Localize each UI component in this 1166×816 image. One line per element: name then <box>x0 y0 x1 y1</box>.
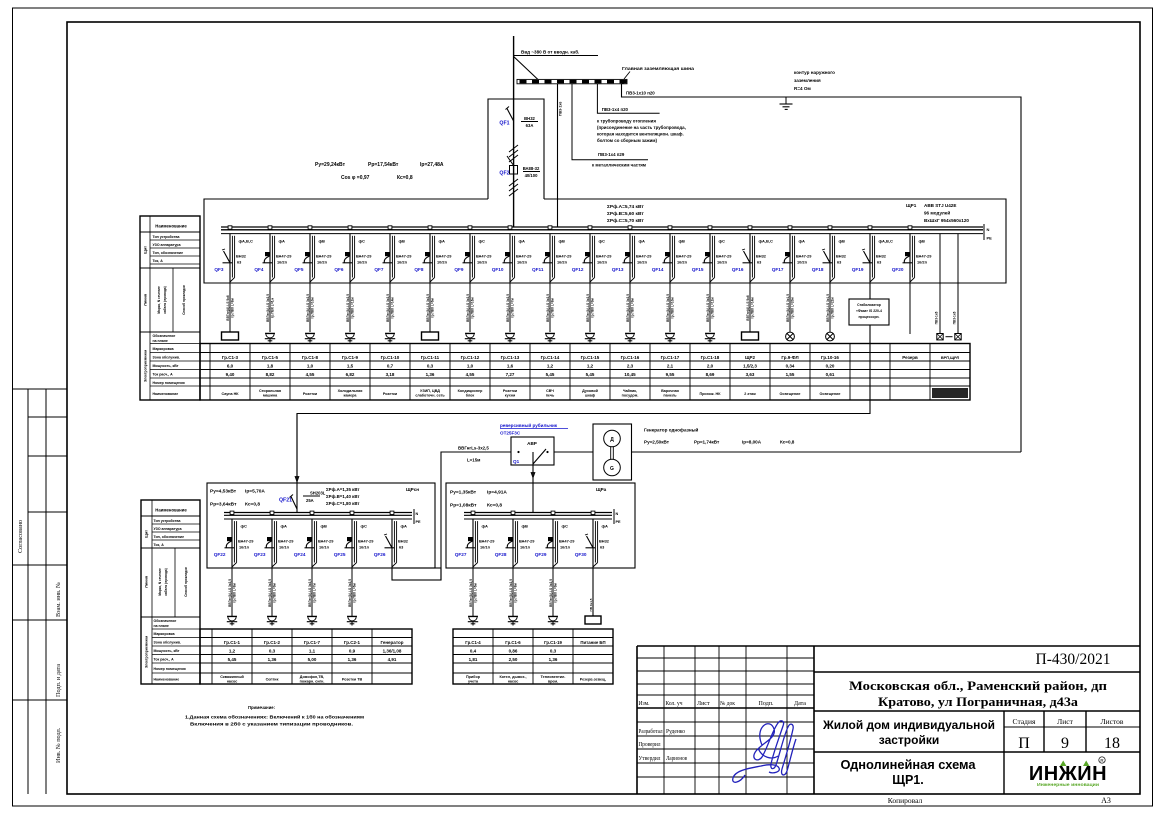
svg-text:16/2п: 16/2п <box>357 260 368 265</box>
svg-text:QF23: QF23 <box>254 552 266 557</box>
svg-text:ВА47-29: ВА47-29 <box>596 254 612 259</box>
svg-text:Марка, N сечение: Марка, N сечение <box>157 286 161 314</box>
svg-text:Скважинный: Скважинный <box>220 675 244 679</box>
svg-text:Однолинейная схема: Однолинейная схема <box>841 758 977 772</box>
svg-text:9,40: 9,40 <box>226 372 235 377</box>
svg-text:Гр.С1-17: Гр.С1-17 <box>661 355 680 360</box>
svg-text:1.Данная схема обозначениях: В: 1.Данная схема обозначениях: Включений к… <box>185 714 365 720</box>
svg-text:№ док: № док <box>720 701 735 707</box>
svg-text:пожарн. сигн.: пожарн. сигн. <box>300 680 325 684</box>
svg-text:1,36: 1,36 <box>549 657 558 662</box>
svg-text:ВВГнгLs-3х2,5: ВВГнгLs-3х2,5 <box>458 446 489 451</box>
svg-text:Сауна НК: Сауна НК <box>221 392 239 396</box>
svg-text:Номер помещения: Номер помещения <box>153 381 185 385</box>
svg-text:Копировал: Копировал <box>888 796 923 805</box>
svg-text:Септик: Септик <box>266 678 279 682</box>
svg-text:16/1п: 16/1п <box>560 545 571 550</box>
svg-text:Гр.С1-8: Гр.С1-8 <box>302 355 319 360</box>
svg-text:10,45: 10,45 <box>624 372 636 377</box>
svg-text:Наименование: Наименование <box>155 224 187 229</box>
svg-text:тр.ПВХ L=8м: тр.ПВХ L=8м <box>513 582 517 602</box>
svg-text:1,5: 1,5 <box>347 364 354 369</box>
svg-text:0,61: 0,61 <box>826 372 835 377</box>
svg-text:ЩРа: ЩРа <box>596 487 607 492</box>
svg-text:тр.ПВХ L=7м: тр.ПВХ L=7м <box>510 297 514 317</box>
svg-text:Рр=17,54кВт: Рр=17,54кВт <box>368 162 399 168</box>
svg-text:фА: фА <box>401 524 408 529</box>
svg-text:Генератор: Генератор <box>381 640 404 645</box>
svg-text:16/2п: 16/2п <box>317 260 328 265</box>
svg-text:5,00: 5,00 <box>308 657 317 662</box>
svg-text:ВА47-29: ВА47-29 <box>316 254 332 259</box>
svg-text:Мощность, кВт: Мощность, кВт <box>153 364 179 368</box>
svg-text:Гр.С1-15: Гр.С1-15 <box>581 355 600 360</box>
svg-text:16/2п: 16/2п <box>597 260 608 265</box>
svg-text:16/2п: 16/2п <box>717 260 728 265</box>
svg-text:фВ: фВ <box>679 239 686 244</box>
svg-text:Домофон,ТВ,: Домофон,ТВ, <box>300 675 324 679</box>
svg-text:ЩР1.: ЩР1. <box>892 773 924 787</box>
svg-text:ΣРф.С=5,70 кВт: ΣРф.С=5,70 кВт <box>607 217 644 224</box>
svg-text:0,34: 0,34 <box>786 364 795 369</box>
svg-text:16/2п: 16/2п <box>557 260 568 265</box>
svg-text:Cos φ =0,97: Cos φ =0,97 <box>341 175 370 181</box>
svg-text:насос: насос <box>227 680 238 684</box>
svg-text:Гр.С1-5: Гр.С1-5 <box>262 355 279 360</box>
svg-text:QF6: QF6 <box>334 267 344 272</box>
svg-text:ВВГнг(А)-LS 3х2,5: ВВГнг(А)-LS 3х2,5 <box>348 579 352 607</box>
svg-text:ΣРф.В=5,60 кВт: ΣРф.В=5,60 кВт <box>607 210 644 217</box>
svg-text:5,45: 5,45 <box>228 657 237 662</box>
svg-text:ΣРф.В=1,40 кВт: ΣРф.В=1,40 кВт <box>326 494 360 499</box>
svg-text:Iр=4,91А: Iр=4,91А <box>487 490 507 496</box>
svg-text:Обозначение: Обозначение <box>153 334 176 338</box>
svg-text:ЩР1: ЩР1 <box>906 203 917 208</box>
svg-text:0,86: 0,86 <box>509 649 518 654</box>
svg-text:застройки: застройки <box>879 733 939 747</box>
svg-text:Стабилизатор: Стабилизатор <box>857 303 881 307</box>
svg-text:Чайник,: Чайник, <box>623 389 637 393</box>
svg-text:Рр=3,64кВт: Рр=3,64кВт <box>210 502 237 508</box>
svg-text:0,9: 0,9 <box>349 649 356 654</box>
svg-text:Холодильная: Холодильная <box>338 389 363 393</box>
svg-text:Ру=29,24кВт: Ру=29,24кВт <box>315 162 346 168</box>
svg-text:ВА47-29: ВА47-29 <box>278 539 294 544</box>
svg-text:Тип, обозначение: Тип, обозначение <box>153 251 184 255</box>
svg-text:3,63: 3,63 <box>746 372 755 377</box>
svg-text:тр.ПВХ L=9м: тр.ПВХ L=9м <box>590 297 594 317</box>
svg-text:Кс=0,8: Кс=0,8 <box>397 175 413 181</box>
svg-text:ВН32: ВН32 <box>836 254 847 259</box>
svg-text:ВВГнг(А)-LS 3х2,5: ВВГнг(А)-LS 3х2,5 <box>549 579 553 607</box>
svg-text:УЗО аппаратура: УЗО аппаратура <box>154 527 182 531</box>
svg-text:Кс=0,8: Кс=0,8 <box>780 440 795 445</box>
svg-text:фА,В,С: фА,В,С <box>879 239 894 244</box>
svg-text:Кондиционер: Кондиционер <box>458 389 483 393</box>
svg-text:16/2п: 16/2п <box>517 260 528 265</box>
svg-text:16/1п: 16/1п <box>359 545 370 550</box>
svg-text:9,55: 9,55 <box>666 372 675 377</box>
svg-text:1,8: 1,8 <box>267 364 274 369</box>
svg-text:Гр.С1-7: Гр.С1-7 <box>304 640 321 645</box>
svg-text:16/1п: 16/1п <box>480 545 491 550</box>
svg-text:тр.ПВХ L=6м: тр.ПВХ L=6м <box>352 582 356 602</box>
svg-text:16/2п: 16/2п <box>397 260 408 265</box>
svg-text:Тип, обозначение: Тип, обозначение <box>154 535 185 539</box>
svg-text:N: N <box>416 512 419 516</box>
svg-text:ВхШхГ 954х560х120: ВхШхГ 954х560х120 <box>924 218 969 223</box>
svg-text:Наименование: Наименование <box>155 508 187 513</box>
svg-text:Электроприемники: Электроприемники <box>145 636 149 668</box>
svg-text:ΣРф.А=5,74 кВт: ΣРф.А=5,74 кВт <box>607 203 644 210</box>
svg-text:тр.ПВХ L=8м: тр.ПВХ L=8м <box>230 297 234 317</box>
svg-text:QF26: QF26 <box>374 552 386 557</box>
svg-text:2,3: 2,3 <box>627 364 634 369</box>
svg-text:Руденко: Руденко <box>666 728 685 735</box>
svg-text:Жилой дом индивидуальной: Жилой дом индивидуальной <box>822 718 995 732</box>
svg-text:QF10: QF10 <box>492 267 504 272</box>
svg-text:1,0: 1,0 <box>307 364 314 369</box>
svg-text:PE: PE <box>987 236 993 241</box>
svg-text:ВВГнг(А)-LS 5х6: ВВГнг(А)-LS 5х6 <box>226 295 230 321</box>
svg-text:фВ: фВ <box>522 524 529 529</box>
svg-text:ВВГнг(А)-LS 3х1,5: ВВГнг(А)-LS 3х1,5 <box>786 294 790 322</box>
svg-text:ВА47-29: ВА47-29 <box>559 539 575 544</box>
svg-text:1,81: 1,81 <box>469 657 478 662</box>
svg-text:Щит: Щит <box>145 530 149 538</box>
svg-text:Розетки: Розетки <box>383 392 398 396</box>
svg-text:Гр.С1-2: Гр.С1-2 <box>264 640 281 645</box>
svg-text:тр.ПВХ L=16м: тр.ПВХ L=16м <box>470 297 474 319</box>
svg-text:2,1: 2,1 <box>667 364 674 369</box>
svg-text:ВА47-29: ВА47-29 <box>356 254 372 259</box>
svg-text:ВН32: ВН32 <box>599 539 610 544</box>
svg-text:фА: фА <box>602 524 609 529</box>
svg-text:QF2: QF2 <box>499 171 509 177</box>
svg-text:тр.ПВХ L=12м: тр.ПВХ L=12м <box>710 297 714 319</box>
svg-text:Марка, N сечение: Марка, N сечение <box>158 568 162 596</box>
svg-text:тр.ПВХ L=14м: тр.ПВХ L=14м <box>390 297 394 319</box>
svg-text:на плане: на плане <box>154 624 169 628</box>
svg-text:Тип устройства: Тип устройства <box>153 235 180 239</box>
svg-text:10/2п: 10/2п <box>437 260 448 265</box>
svg-text:ПВ3-1х6: ПВ3-1х6 <box>559 102 563 116</box>
svg-text:Гр.С1-10: Гр.С1-10 <box>381 355 400 360</box>
svg-text:ВВГнг(А)-LS 3х1,5: ВВГнг(А)-LS 3х1,5 <box>826 294 830 322</box>
svg-text:болтом со сборным зажим): болтом со сборным зажим) <box>597 138 658 143</box>
svg-text:тр.ПВХ L=6м: тр.ПВХ L=6м <box>473 582 477 602</box>
svg-text:PE: PE <box>616 520 622 524</box>
svg-text:ВВГнг(А)-LS 3х2,5: ВВГнг(А)-LS 3х2,5 <box>268 579 272 607</box>
svg-text:ВА47-29: ВА47-29 <box>476 254 492 259</box>
svg-text:посудом.: посудом. <box>622 394 639 398</box>
svg-text:Включения в 2б0 с указанием ти: Включения в 2б0 с указанием типизации пр… <box>190 721 353 727</box>
svg-text:ВВГнг(А)-LS 3х2,5: ВВГнг(А)-LS 3х2,5 <box>386 294 390 322</box>
svg-text:Ток, А: Ток, А <box>154 543 165 547</box>
svg-text:А3: А3 <box>1101 796 1111 805</box>
svg-text:1,36: 1,36 <box>426 372 435 377</box>
svg-text:ВА47-29: ВА47-29 <box>436 254 452 259</box>
svg-text:Электроприемники: Электроприемники <box>144 350 148 382</box>
svg-text:фВ: фВ <box>839 239 846 244</box>
svg-text:4,55: 4,55 <box>306 372 315 377</box>
svg-text:Генератор однофазный: Генератор однофазный <box>644 427 699 433</box>
svg-text:камера: камера <box>344 394 358 398</box>
svg-text:QF12: QF12 <box>572 267 584 272</box>
svg-text:П: П <box>1018 735 1030 752</box>
svg-text:N: N <box>616 512 619 516</box>
svg-text:ВА88-32: ВА88-32 <box>523 166 540 171</box>
svg-text:тр.ПВХ L=7м: тр.ПВХ L=7м <box>312 582 316 602</box>
svg-text:тр.ПВХ L=8м: тр.ПВХ L=8м <box>550 297 554 317</box>
svg-text:1,36/1,08: 1,36/1,08 <box>383 649 402 654</box>
svg-text:R=4 Ом: R=4 Ом <box>794 86 811 91</box>
svg-text:0,4: 0,4 <box>470 649 477 654</box>
svg-text:фВ: фВ <box>319 239 326 244</box>
svg-text:QF24: QF24 <box>294 552 306 557</box>
svg-text:4,55: 4,55 <box>466 372 475 377</box>
svg-text:Стадия: Стадия <box>1013 717 1036 726</box>
svg-text:Мощность, кВт: Мощность, кВт <box>154 649 180 653</box>
svg-text:тр.ПВХ L=9м: тр.ПВХ L=9м <box>272 582 276 602</box>
svg-text:Ру=2,50кВт: Ру=2,50кВт <box>644 440 670 445</box>
svg-text:Тип устройства: Тип устройства <box>154 519 181 523</box>
svg-text:Ток, А: Ток, А <box>153 259 164 263</box>
svg-text:Рр=1,08кВт: Рр=1,08кВт <box>450 503 477 509</box>
svg-text:QF19: QF19 <box>852 267 864 272</box>
svg-text:ВВГнг(А)-LS 3х2,5: ВВГнг(А)-LS 3х2,5 <box>469 579 473 607</box>
svg-text:QF14: QF14 <box>652 267 664 272</box>
svg-text:16/2п: 16/2п <box>477 260 488 265</box>
svg-text:16/2п: 16/2п <box>677 260 688 265</box>
svg-text:Листов: Листов <box>1101 717 1124 726</box>
svg-text:25А: 25А <box>306 498 314 503</box>
svg-text:контур наружного: контур наружного <box>794 70 835 75</box>
svg-text:QF8: QF8 <box>414 267 424 272</box>
svg-text:Прибор: Прибор <box>466 675 481 679</box>
svg-text:9: 9 <box>1061 735 1069 752</box>
svg-text:Розетки: Розетки <box>503 389 518 393</box>
svg-text:тр.ПВХ L=6,н: тр.ПВХ L=6,н <box>270 298 274 318</box>
svg-text:ВА47-29: ВА47-29 <box>636 254 652 259</box>
svg-text:16/1п: 16/1п <box>319 545 330 550</box>
svg-text:ПВ3-1х10 п20: ПВ3-1х10 п20 <box>626 91 655 96</box>
svg-text:тр.ПВХ L=10м: тр.ПВХ L=10м <box>670 297 674 319</box>
svg-text:ВН32: ВН32 <box>236 254 247 259</box>
svg-text:ВА47-29: ВА47-29 <box>676 254 692 259</box>
svg-text:тр.ПВХ L=6м: тр.ПВХ L=6м <box>430 297 434 317</box>
svg-text:Московская обл., Раменский рай: Московская обл., Раменский район, дп <box>849 678 1108 693</box>
svg-text:тр.ПВХ L=20м: тр.ПВХ L=20м <box>790 297 794 319</box>
svg-text:16/1п: 16/1п <box>520 545 531 550</box>
svg-text:0,7: 0,7 <box>387 364 394 369</box>
svg-text:ВА47-29: ВА47-29 <box>238 539 254 544</box>
svg-text:Зона обслужив.: Зона обслужив. <box>154 641 182 645</box>
svg-text:0,3: 0,3 <box>427 364 434 369</box>
svg-text:ВА47-29: ВА47-29 <box>516 254 532 259</box>
svg-text:1,2: 1,2 <box>229 649 236 654</box>
svg-text:ВА47-29: ВА47-29 <box>479 539 495 544</box>
svg-text:ВВГнг(А)-LS 3х2,5: ВВГнг(А)-LS 3х2,5 <box>228 579 232 607</box>
svg-text:Проверил: Проверил <box>639 741 661 748</box>
svg-text:Инв. № подл.: Инв. № подл. <box>55 727 62 763</box>
svg-text:7,27: 7,27 <box>506 372 515 377</box>
svg-text:УЗИП, ЦВД: УЗИП, ЦВД <box>420 389 440 393</box>
svg-text:Примечание:: Примечание: <box>248 705 275 710</box>
svg-text:Гр.9-ФЛ: Гр.9-ФЛ <box>781 355 798 360</box>
svg-text:заземления: заземления <box>794 78 821 83</box>
svg-text:ABB STJ U42E: ABB STJ U42E <box>924 203 956 208</box>
svg-text:ВН32: ВН32 <box>398 539 409 544</box>
svg-text:16/2п: 16/2п <box>277 260 288 265</box>
svg-text:Гр.С1-4: Гр.С1-4 <box>465 640 481 645</box>
svg-text:16/1п: 16/1п <box>239 545 250 550</box>
svg-text:5,45: 5,45 <box>546 372 555 377</box>
svg-text:6,82: 6,82 <box>346 372 355 377</box>
svg-text:Разработал: Разработал <box>639 728 663 735</box>
svg-text:реверсивный рубильник: реверсивный рубильник <box>500 422 558 428</box>
svg-text:Гр.С1-11: Гр.С1-11 <box>421 355 440 360</box>
svg-text:ПВ3-1х6: ПВ3-1х6 <box>953 311 957 324</box>
svg-text:QF15: QF15 <box>692 267 704 272</box>
svg-text:ВВГнг(А)-LS 5х6: ВВГнг(А)-LS 5х6 <box>746 295 750 321</box>
svg-text:Гр.С1-1: Гр.С1-1 <box>224 640 241 645</box>
svg-text:SH203L: SH203L <box>310 491 326 496</box>
svg-text:АВР: АВР <box>527 441 537 446</box>
svg-text:1,0: 1,0 <box>467 364 474 369</box>
svg-text:ВРП,ЩРЛ: ВРП,ЩРЛ <box>941 355 960 360</box>
svg-text:учета: учета <box>468 680 479 684</box>
svg-text:QF4: QF4 <box>254 267 264 272</box>
svg-text:Ру=4,53кВт: Ру=4,53кВт <box>210 489 237 495</box>
svg-text:ЩРсн: ЩРсн <box>406 487 419 492</box>
svg-text:фС: фС <box>359 239 366 244</box>
svg-text:Линия: Линия <box>144 294 148 306</box>
svg-text:П-430/2021: П-430/2021 <box>1036 651 1111 668</box>
svg-text:QF20: QF20 <box>892 267 904 272</box>
svg-text:QF18: QF18 <box>812 267 824 272</box>
svg-text:Кратово, ул Пограничная, д43а: Кратово, ул Пограничная, д43а <box>878 694 1079 709</box>
svg-text:QF5: QF5 <box>294 267 304 272</box>
svg-text:фС: фС <box>361 524 368 529</box>
svg-text:ВВГнг(А)-LS 3х2,5: ВВГнг(А)-LS 3х2,5 <box>586 294 590 322</box>
svg-text:(присоединение на часть трубоп: (присоединение на часть трубопровода, <box>597 125 686 130</box>
svg-text:печь: печь <box>546 394 555 398</box>
svg-text:QF22: QF22 <box>214 552 226 557</box>
svg-text:QF30: QF30 <box>575 552 587 557</box>
svg-text:QF13: QF13 <box>612 267 624 272</box>
svg-text:N: N <box>987 227 990 232</box>
svg-text:ВВГнг(А)-LS 3х2,5: ВВГнг(А)-LS 3х2,5 <box>706 294 710 322</box>
svg-text:Гр.С1-3: Гр.С1-3 <box>222 355 239 360</box>
svg-text:ВВГнг(А)-LS 3х2,5: ВВГнг(А)-LS 3х2,5 <box>426 294 430 322</box>
svg-text:4,91: 4,91 <box>388 657 397 662</box>
svg-text:блок: блок <box>466 394 475 398</box>
svg-text:Прихож. НК: Прихож. НК <box>700 392 722 396</box>
svg-text:Гр.С1-9: Гр.С1-9 <box>342 355 359 360</box>
svg-text:Котел, дымох.,: Котел, дымох., <box>499 675 526 679</box>
svg-text:QF3: QF3 <box>214 267 224 272</box>
svg-text:машина: машина <box>263 394 278 398</box>
svg-text:фС: фС <box>562 524 569 529</box>
svg-text:QF17: QF17 <box>772 267 784 272</box>
svg-text:2,0: 2,0 <box>707 364 714 369</box>
svg-text:Изм.: Изм. <box>639 701 650 707</box>
svg-text:фА,В,С: фА,В,С <box>239 239 254 244</box>
svg-text:Ввд ~380 В от вводн. каб.: Ввд ~380 В от вводн. каб. <box>521 49 579 55</box>
svg-text:фА: фА <box>281 524 288 529</box>
svg-text:OT25F3C: OT25F3C <box>500 431 521 436</box>
svg-text:Розетки ТВ: Розетки ТВ <box>342 678 363 682</box>
svg-text:1,5/2,3: 1,5/2,3 <box>743 364 757 369</box>
svg-text:Способ прокладки: Способ прокладки <box>184 567 188 597</box>
svg-text:Стиральная: Стиральная <box>259 389 281 393</box>
svg-text:Резерв.освещ.: Резерв.освещ. <box>580 678 606 682</box>
svg-text:на плане: на плане <box>153 339 168 343</box>
svg-text:QF1: QF1 <box>499 121 509 127</box>
svg-text:Ток расч., А: Ток расч., А <box>153 373 174 377</box>
svg-text:ΣРф.С=1,80 кВт: ΣРф.С=1,80 кВт <box>326 501 360 506</box>
svg-text:Обозначение: Обозначение <box>154 619 177 623</box>
svg-text:ПВ 3х1,5: ПВ 3х1,5 <box>589 598 593 611</box>
svg-text:ВВГнг(А)-LS 3х2,5: ВВГнг(А)-LS 3х2,5 <box>626 294 630 322</box>
svg-text:Маркировка: Маркировка <box>153 347 174 351</box>
svg-text:ВВГнг(А)-LS 3х2,5: ВВГнг(А)-LS 3х2,5 <box>466 294 470 322</box>
svg-text:ВВГнг(А)-LS 3х2,5: ВВГнг(А)-LS 3х2,5 <box>506 294 510 322</box>
svg-text:к трубопроводу отопления: к трубопроводу отопления <box>597 119 656 124</box>
svg-text:СВЧ: СВЧ <box>546 389 554 393</box>
svg-text:Розетки: Розетки <box>303 392 318 396</box>
svg-text:ВА47-29: ВА47-29 <box>318 539 334 544</box>
svg-text:Iр=8,00А: Iр=8,00А <box>742 440 762 445</box>
svg-text:3,18: 3,18 <box>386 372 395 377</box>
svg-text:Согласовано: Согласовано <box>17 520 24 553</box>
svg-text:QF25: QF25 <box>334 552 346 557</box>
svg-text:Способ прокладки: Способ прокладки <box>182 285 186 315</box>
svg-text:1,6: 1,6 <box>507 364 514 369</box>
svg-text:УЗО аппаратура: УЗО аппаратура <box>153 243 181 247</box>
svg-text:Инженерные инновации: Инженерные инновации <box>1037 782 1099 787</box>
svg-text:ВВГнг(А)-LS 3х2,5: ВВГнг(А)-LS 3х2,5 <box>308 579 312 607</box>
svg-text:18: 18 <box>1104 735 1120 752</box>
svg-text:Главная заземляющая шина: Главная заземляющая шина <box>622 66 694 71</box>
svg-text:Гр.С1-16: Гр.С1-16 <box>621 355 640 360</box>
svg-text:40/100: 40/100 <box>525 173 538 178</box>
svg-text:фА: фА <box>799 239 806 244</box>
svg-text:тр.ПВХ L=14м: тр.ПВХ L=14м <box>750 297 754 319</box>
svg-text:QF27: QF27 <box>455 552 467 557</box>
svg-text:ПВ3-1х4 п20: ПВ3-1х4 п20 <box>602 107 629 112</box>
svg-text:96 модулей: 96 модулей <box>924 210 950 216</box>
svg-text:Маркировка: Маркировка <box>154 632 175 636</box>
svg-text:Освещение: Освещение <box>820 392 841 396</box>
svg-text:ЩР2: ЩР2 <box>745 355 756 360</box>
svg-text:5,45: 5,45 <box>586 372 595 377</box>
svg-text:Гр.10-16: Гр.10-16 <box>821 355 839 360</box>
svg-text:Кс=0,8: Кс=0,8 <box>487 503 502 509</box>
svg-text:Лист: Лист <box>697 701 710 707</box>
svg-text:Рр=1,74кВт: Рр=1,74кВт <box>694 440 720 445</box>
svg-text:ВВГнг(А)-LS 3х2,5: ВВГнг(А)-LS 3х2,5 <box>346 294 350 322</box>
svg-text:процессорн.: процессорн. <box>858 315 879 319</box>
svg-text:Тепловентил.: Тепловентил. <box>541 675 566 679</box>
svg-text:Гр.С1-19: Гр.С1-19 <box>544 640 562 645</box>
svg-text:Питание БП: Питание БП <box>580 640 605 645</box>
svg-text:ΣРф.А=1,35 кВт: ΣРф.А=1,35 кВт <box>326 487 360 492</box>
svg-text:ПВ3-1х4 п29: ПВ3-1х4 п29 <box>598 152 625 157</box>
svg-text:Iр=27,48А: Iр=27,48А <box>420 162 444 168</box>
svg-text:Гр.С1-14: Гр.С1-14 <box>541 355 560 360</box>
